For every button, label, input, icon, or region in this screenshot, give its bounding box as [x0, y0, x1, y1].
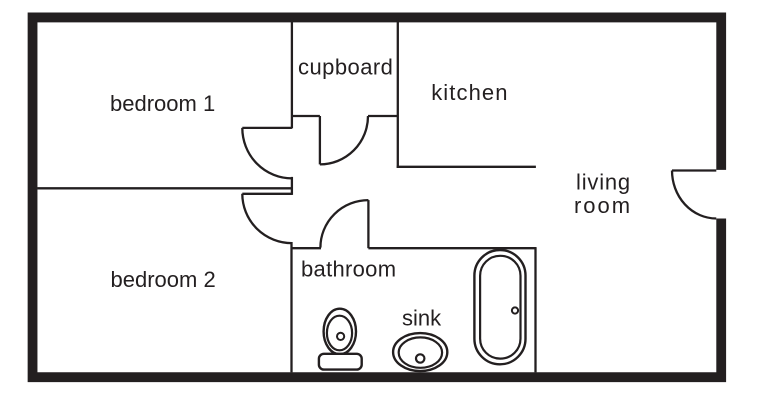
svg-text:sink: sink [402, 305, 442, 330]
svg-text:bedroom 1: bedroom 1 [110, 91, 215, 116]
svg-text:living: living [576, 170, 631, 195]
svg-text:cupboard: cupboard [298, 55, 393, 80]
svg-text:kitchen: kitchen [431, 80, 508, 105]
svg-text:room: room [574, 193, 632, 218]
svg-text:bedroom 2: bedroom 2 [111, 267, 216, 292]
svg-text:bathroom: bathroom [301, 257, 396, 282]
